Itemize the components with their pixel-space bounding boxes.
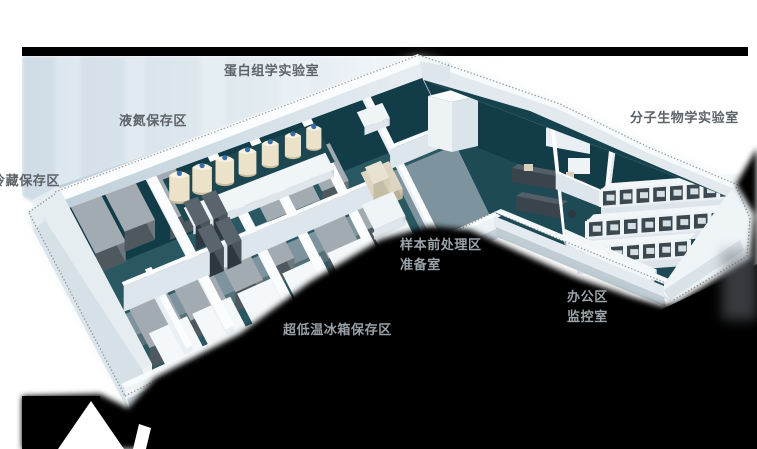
svg-text:监控室: 监控室 [567, 309, 608, 324]
svg-text:蛋白组学实验室: 蛋白组学实验室 [224, 63, 319, 78]
svg-text:准备室: 准备室 [400, 257, 441, 272]
svg-text:液氮保存区: 液氮保存区 [119, 113, 187, 128]
svg-text:超低温冰箱保存区: 超低温冰箱保存区 [283, 322, 392, 337]
svg-text:办公区: 办公区 [567, 289, 608, 304]
svg-text:分子生物学实验室: 分子生物学实验室 [630, 110, 739, 125]
svg-text:冷藏保存区: 冷藏保存区 [0, 173, 60, 188]
svg-text:样本前处理区: 样本前处理区 [400, 237, 482, 252]
